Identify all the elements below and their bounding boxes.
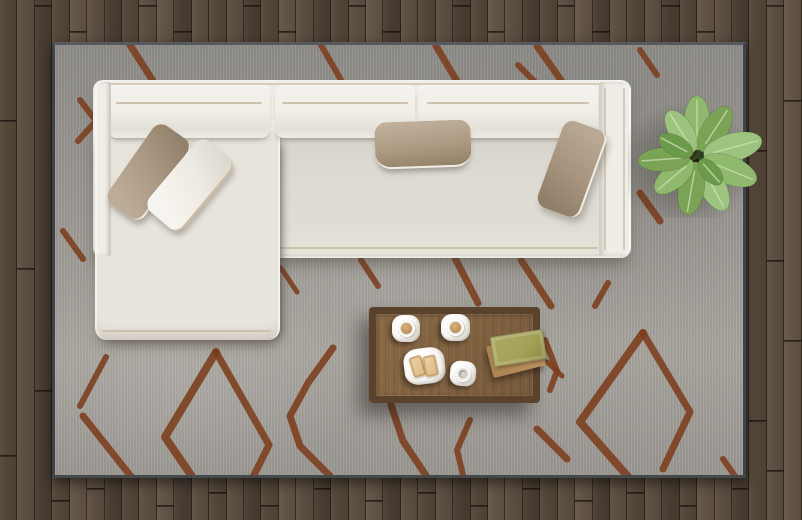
- cup: [447, 319, 464, 336]
- potted-plant: [619, 79, 775, 235]
- snack-plate: [402, 346, 447, 387]
- coffee-cup-left: [392, 315, 420, 342]
- living-room-scene: [0, 0, 802, 520]
- back-cushion-left: [108, 85, 270, 138]
- coffee-cup-right: [441, 314, 470, 341]
- cup-interior: [459, 369, 468, 378]
- empty-cup: [449, 360, 477, 387]
- sectional-sofa: [0, 0, 802, 520]
- plant-foliage: [637, 96, 765, 217]
- throw-pillow-center: [374, 119, 472, 169]
- coffee-surface: [401, 323, 412, 334]
- cup: [454, 365, 471, 382]
- cup: [398, 320, 415, 337]
- coffee-surface: [450, 322, 461, 333]
- sofa-arm-left: [95, 82, 111, 256]
